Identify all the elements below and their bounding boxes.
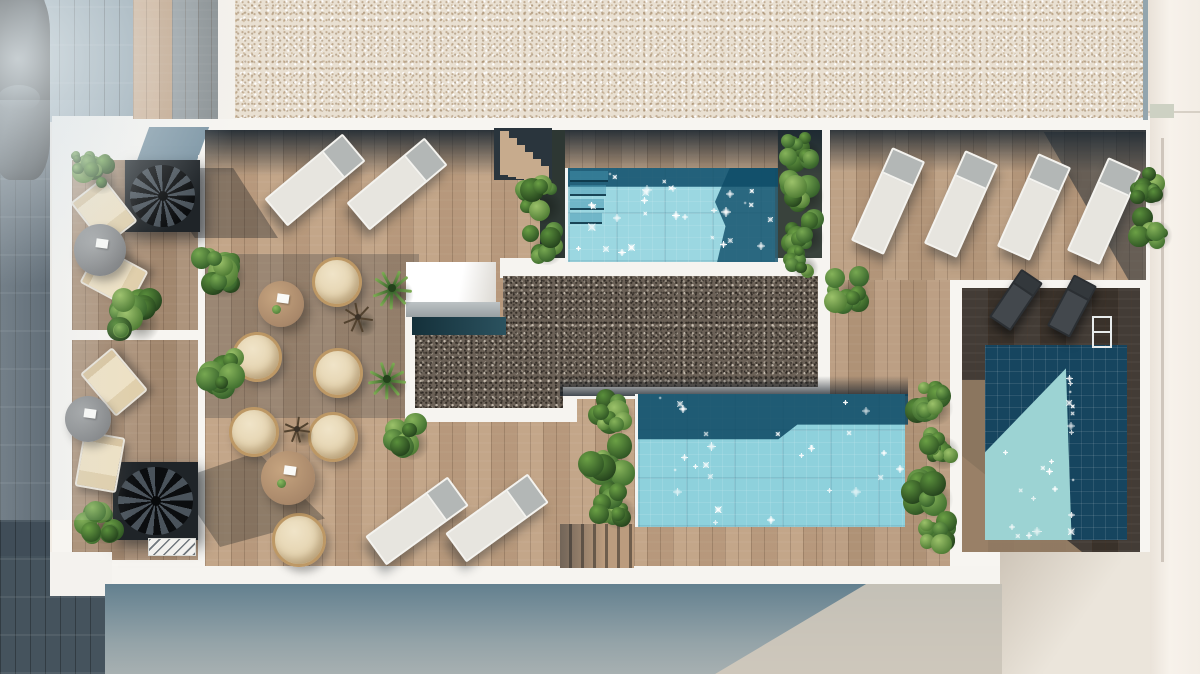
leaf-cluster (196, 367, 221, 392)
leaf-cluster (223, 353, 238, 368)
street-sun-streak (0, 100, 140, 520)
plant-shadow (922, 524, 958, 554)
leaf-cluster (919, 435, 939, 455)
palm-plant (374, 270, 410, 306)
palm-blade (387, 379, 406, 384)
water-sparkle (672, 467, 678, 473)
leaf-cluster (796, 190, 808, 202)
leaf-cluster (1152, 234, 1162, 244)
water-sparkle (896, 465, 904, 473)
water-sparkle (705, 472, 715, 482)
palm-blade (381, 271, 393, 290)
water-sparkle (799, 453, 804, 458)
plant-shadow (529, 235, 565, 265)
leaf-cluster (520, 178, 544, 202)
leaf-cluster (1130, 190, 1145, 205)
leaf-cluster (1149, 233, 1165, 249)
leaf-cluster (396, 432, 420, 456)
palm-blade (375, 277, 393, 290)
ac-unit-ledge (406, 302, 500, 317)
palm-blade (368, 379, 387, 385)
leaf-cluster (394, 421, 407, 434)
leaf-cluster (784, 136, 800, 152)
leaf-cluster (920, 534, 935, 549)
leaf-cluster (920, 519, 933, 532)
leaf-cluster (933, 443, 952, 462)
twig-branch (296, 417, 299, 430)
leaf-cluster (796, 175, 820, 199)
leaf-cluster (933, 450, 945, 462)
twig-branch (291, 429, 297, 442)
leaf-cluster (589, 504, 609, 524)
plant-shadow (524, 190, 564, 224)
leaf-cluster (905, 494, 924, 513)
pool-bottom (635, 394, 905, 527)
water-sparkle (681, 454, 689, 462)
bush-plant (904, 469, 950, 515)
leaf-cluster (542, 243, 555, 256)
leaf-cluster (934, 531, 954, 551)
leaf-cluster (608, 504, 626, 522)
bush-plant (517, 179, 559, 221)
leaf-cluster (396, 423, 415, 442)
pool-ladder (1092, 316, 1112, 348)
rattan-chair (272, 513, 326, 567)
leaf-cluster (593, 494, 612, 513)
leaf-cluster (383, 429, 405, 451)
bush-plant (781, 169, 821, 209)
leaf-cluster (1134, 178, 1152, 196)
gravel-roof-top (235, 0, 1146, 118)
water-sparkle (707, 442, 716, 451)
leaf-cluster (198, 361, 225, 388)
leaf-cluster (919, 491, 935, 507)
twig-plant (284, 416, 310, 442)
leaf-cluster (1130, 182, 1144, 196)
leaf-cluster (787, 182, 800, 195)
leaf-cluster (598, 508, 613, 523)
leaf-cluster (520, 200, 534, 214)
leaf-cluster (531, 201, 545, 215)
leaf-cluster (1147, 174, 1166, 193)
water-sparkle (639, 186, 652, 199)
leaf-cluster (919, 404, 933, 418)
water-sparkle (1069, 430, 1074, 435)
leaf-cluster (583, 460, 599, 476)
leaf-cluster (101, 525, 118, 542)
leaf-cluster (1147, 222, 1166, 241)
twig-branch (351, 317, 359, 331)
pool-top-step (570, 213, 602, 224)
rooftop-terrace-render (0, 0, 1200, 674)
leaf-cluster (597, 418, 610, 431)
water-sparkle (618, 249, 626, 257)
water-sparkle (642, 185, 652, 195)
water-sparkle (767, 516, 775, 524)
leaf-cluster (787, 245, 805, 263)
leaf-cluster (943, 448, 958, 463)
water-sparkle (709, 234, 716, 241)
bush-plant (825, 268, 867, 310)
terrace-south-wall (105, 566, 1005, 584)
leaf-cluster (848, 291, 868, 311)
leaf-cluster (799, 149, 813, 163)
leaf-cluster (916, 402, 931, 417)
leaf-cluster (1142, 224, 1161, 243)
gravel-bottom-left-border-wall (405, 406, 575, 422)
leaf-cluster (399, 436, 412, 449)
leaf-cluster (921, 490, 947, 516)
leaf-cluster (390, 436, 410, 456)
bush-plant (917, 426, 957, 466)
leaf-cluster (792, 139, 803, 150)
bush-plant (908, 380, 950, 422)
palm-blade (373, 288, 393, 298)
palm-blade (386, 363, 396, 382)
pool-right (985, 345, 1127, 540)
bush-plant (1131, 169, 1165, 203)
leaf-cluster (1133, 183, 1151, 201)
water-sparkle (1069, 403, 1077, 411)
water-sparkle (641, 197, 648, 204)
leaf-cluster (598, 411, 621, 434)
leaf-cluster (81, 522, 101, 542)
leaf-cluster (614, 412, 632, 430)
leaf-cluster (793, 192, 809, 208)
leaf-cluster (532, 175, 552, 195)
palm-blade (391, 271, 401, 290)
leaf-cluster (907, 469, 932, 494)
leaf-cluster (928, 443, 940, 455)
water-sparkle (808, 445, 815, 452)
leaf-cluster (784, 175, 807, 198)
leaf-cluster (203, 367, 231, 395)
pool-top (565, 168, 775, 262)
wood-steps-bottom (560, 524, 634, 568)
leaf-cluster (938, 531, 956, 549)
palm-blade (391, 288, 407, 305)
bush-plant (915, 513, 953, 551)
leaf-cluster (540, 227, 561, 248)
leaf-cluster (531, 244, 548, 261)
leaf-cluster (595, 450, 612, 467)
water-sparkle (642, 210, 648, 216)
leaf-cluster (1132, 207, 1153, 228)
leaf-cluster (216, 372, 230, 386)
leaf-cluster (917, 466, 938, 487)
table-plant-sprig (272, 305, 281, 314)
leaf-cluster (785, 222, 799, 236)
twig-center (294, 426, 300, 432)
leaf-cluster (922, 522, 942, 542)
bush-plant (785, 246, 815, 276)
hatched-ramp (148, 538, 196, 556)
plant-shadow (591, 448, 635, 485)
leaf-cluster (905, 398, 929, 422)
pool-top-step (570, 171, 608, 182)
leaf-cluster (923, 398, 938, 413)
leaf-cluster (541, 229, 552, 240)
leaf-cluster (801, 218, 815, 232)
leaf-cluster (587, 458, 614, 485)
leaf-cluster (606, 400, 629, 423)
leaf-cluster (396, 432, 417, 453)
leaf-cluster (593, 404, 609, 420)
leaf-cluster (609, 417, 624, 432)
water-sparkle (700, 460, 711, 471)
leaf-cluster (1141, 183, 1161, 203)
leaf-cluster (796, 227, 812, 243)
bush-plant (782, 131, 818, 167)
leaf-cluster (800, 264, 813, 277)
plant-shadow (788, 180, 826, 212)
leaf-cluster (589, 454, 616, 481)
leaf-cluster (835, 293, 853, 311)
palm-blade (370, 370, 388, 381)
leaf-cluster (932, 439, 948, 455)
water-sparkle (808, 443, 815, 450)
leaf-cluster (785, 258, 799, 272)
water-sparkle (875, 473, 885, 483)
water-sparkle (613, 214, 622, 223)
water-sparkle (600, 244, 611, 255)
leaf-cluster (936, 387, 949, 400)
plant-shadow (789, 141, 823, 170)
twig-branch (357, 306, 368, 318)
building-wall-right (1145, 0, 1200, 674)
twig-branch (357, 318, 363, 333)
leaf-cluster (802, 264, 811, 273)
plant-shadow (600, 497, 638, 529)
leaf-cluster (928, 381, 943, 396)
leaf-cluster (838, 289, 856, 307)
leaf-cluster (601, 488, 622, 509)
leaf-cluster (611, 507, 625, 521)
leaf-cluster (616, 503, 628, 515)
leaf-cluster (1145, 229, 1157, 241)
leaf-cluster (602, 459, 626, 483)
rooftop-skylight-box (406, 262, 496, 302)
pool-top-step (570, 185, 606, 196)
leaf-cluster (784, 253, 799, 268)
leaf-cluster (922, 433, 936, 447)
leaf-cluster (927, 450, 939, 462)
water-sparkle (1067, 389, 1073, 395)
bush-plant (1133, 211, 1169, 247)
twig-center (355, 314, 361, 320)
leaf-cluster (603, 411, 617, 425)
twig-plant (343, 302, 373, 332)
lower-roof-floor-right (1000, 552, 1150, 674)
leaf-cluster (801, 265, 814, 278)
rattan-chair (313, 348, 363, 398)
leaf-cluster (940, 527, 952, 539)
gravel-top-right-edge (1143, 0, 1148, 120)
leaf-cluster (912, 487, 930, 505)
leaf-cluster (392, 436, 414, 458)
palm-center (383, 375, 391, 383)
leaf-cluster (531, 249, 546, 264)
rattan-chair (312, 257, 362, 307)
plant-shadow (381, 280, 415, 309)
twig-branch (285, 424, 297, 431)
table-paper (283, 465, 296, 476)
leaf-cluster (546, 224, 560, 238)
table-plant-sprig (277, 479, 286, 488)
water-sparkle (1069, 410, 1076, 417)
pool-right-shade-0 (985, 345, 1127, 540)
leaf-cluster (225, 348, 244, 367)
leaf-cluster (901, 480, 924, 503)
leaf-cluster (784, 189, 802, 207)
water-sparkle (712, 503, 724, 515)
water-sparkle (625, 241, 638, 254)
leaf-cluster (521, 197, 537, 213)
leaf-cluster (1158, 228, 1169, 239)
water-sparkle (827, 488, 832, 493)
palm-plant (370, 362, 404, 396)
twig-branch (354, 303, 358, 318)
table-wood (261, 451, 315, 505)
leaf-cluster (609, 483, 627, 501)
leaf-cluster (779, 148, 797, 166)
palm-blade (392, 288, 412, 293)
building-wall-vent (1150, 104, 1174, 118)
leaf-cluster (784, 136, 797, 149)
leaf-cluster (903, 490, 928, 515)
twig-branch (358, 317, 373, 321)
leaf-cluster (523, 197, 539, 213)
leaf-cluster (845, 293, 860, 308)
leaf-cluster (918, 382, 930, 394)
plant-shadow (393, 428, 431, 460)
ne-wall (822, 130, 830, 278)
leaf-cluster (920, 471, 946, 497)
twig-branch (284, 429, 297, 433)
leaf-cluster (931, 432, 945, 446)
twig-branch (345, 309, 358, 318)
leaf-cluster (910, 479, 934, 503)
leaf-cluster (543, 241, 556, 254)
leaf-cluster (610, 394, 626, 410)
leaf-cluster (385, 419, 406, 440)
water-sparkle (1067, 422, 1075, 430)
leaf-cluster (402, 423, 416, 437)
leaf-cluster (780, 174, 803, 197)
leaf-cluster (1152, 188, 1163, 199)
leaf-cluster (533, 179, 548, 194)
leaf-cluster (803, 151, 817, 165)
leaf-cluster (616, 418, 628, 430)
leaf-cluster (1142, 167, 1156, 181)
leaf-cluster (787, 226, 807, 246)
leaf-cluster (801, 212, 817, 228)
leaf-cluster (922, 494, 940, 512)
leaf-cluster (598, 455, 620, 477)
plant-shadow (924, 437, 962, 469)
leaf-cluster (102, 524, 119, 541)
bush-plant (522, 224, 560, 262)
plant-shadow (203, 360, 247, 397)
leaf-cluster (1141, 222, 1160, 241)
leaf-cluster (1148, 184, 1158, 194)
leaf-cluster (794, 254, 806, 266)
leaf-cluster (912, 397, 937, 422)
leaf-cluster (927, 384, 951, 408)
leaf-cluster (210, 374, 229, 393)
leaf-cluster (582, 461, 600, 479)
water-sparkle (672, 211, 681, 220)
palm-blade (373, 379, 388, 395)
pool-top-step (570, 199, 604, 210)
bush-plant (592, 391, 632, 431)
leaf-cluster (804, 209, 824, 229)
ledge-shadow-teal (412, 317, 506, 335)
bush-plant (783, 212, 821, 250)
leaf-cluster (791, 138, 810, 157)
leaf-cluster (100, 524, 118, 542)
water-sparkle (1066, 375, 1073, 382)
palm-blade (380, 362, 389, 381)
leaf-cluster (791, 231, 807, 247)
bush-plant (195, 348, 241, 394)
twig-branch (297, 422, 309, 430)
leaf-cluster (215, 376, 228, 389)
leaf-cluster (538, 244, 556, 262)
table-paper (277, 293, 290, 304)
plant-shadow (599, 402, 637, 434)
leaf-cluster (782, 174, 793, 185)
leaf-cluster (783, 253, 796, 266)
leaf-cluster (211, 355, 238, 382)
water-sparkle (711, 208, 717, 214)
bush-plant (593, 486, 633, 526)
leaf-cluster (596, 389, 617, 410)
leaf-cluster (849, 266, 870, 287)
leaf-cluster (825, 268, 845, 288)
palm-blade (386, 380, 400, 396)
spiral-staircase-hub (151, 496, 161, 506)
plant-shadow (1140, 221, 1174, 250)
leaf-cluster (930, 442, 941, 453)
water-sparkle (576, 246, 581, 251)
leaf-cluster (599, 482, 619, 502)
leaf-cluster (918, 520, 935, 537)
leaf-cluster (800, 149, 819, 168)
leaf-cluster (220, 372, 236, 388)
rattan-chair (229, 407, 279, 457)
leaf-cluster (529, 200, 551, 222)
water-sparkle (881, 450, 887, 456)
leaf-cluster (607, 433, 632, 458)
water-sparkle (845, 429, 854, 438)
leaf-cluster (1136, 234, 1147, 245)
leaf-cluster (795, 262, 807, 274)
leaf-cluster (794, 246, 804, 256)
leaf-cluster (779, 170, 800, 191)
leaf-cluster (927, 399, 943, 415)
palm-blade (391, 276, 408, 291)
water-sparkle (693, 464, 698, 469)
leaf-cluster (850, 286, 866, 302)
leaf-cluster (827, 284, 839, 296)
bush-plant (583, 436, 629, 482)
pool-bottom-shade-0 (638, 394, 908, 527)
leaf-cluster (545, 183, 557, 195)
water-sparkle (713, 520, 718, 525)
water-sparkle (682, 214, 688, 220)
leaf-cluster (522, 225, 539, 242)
